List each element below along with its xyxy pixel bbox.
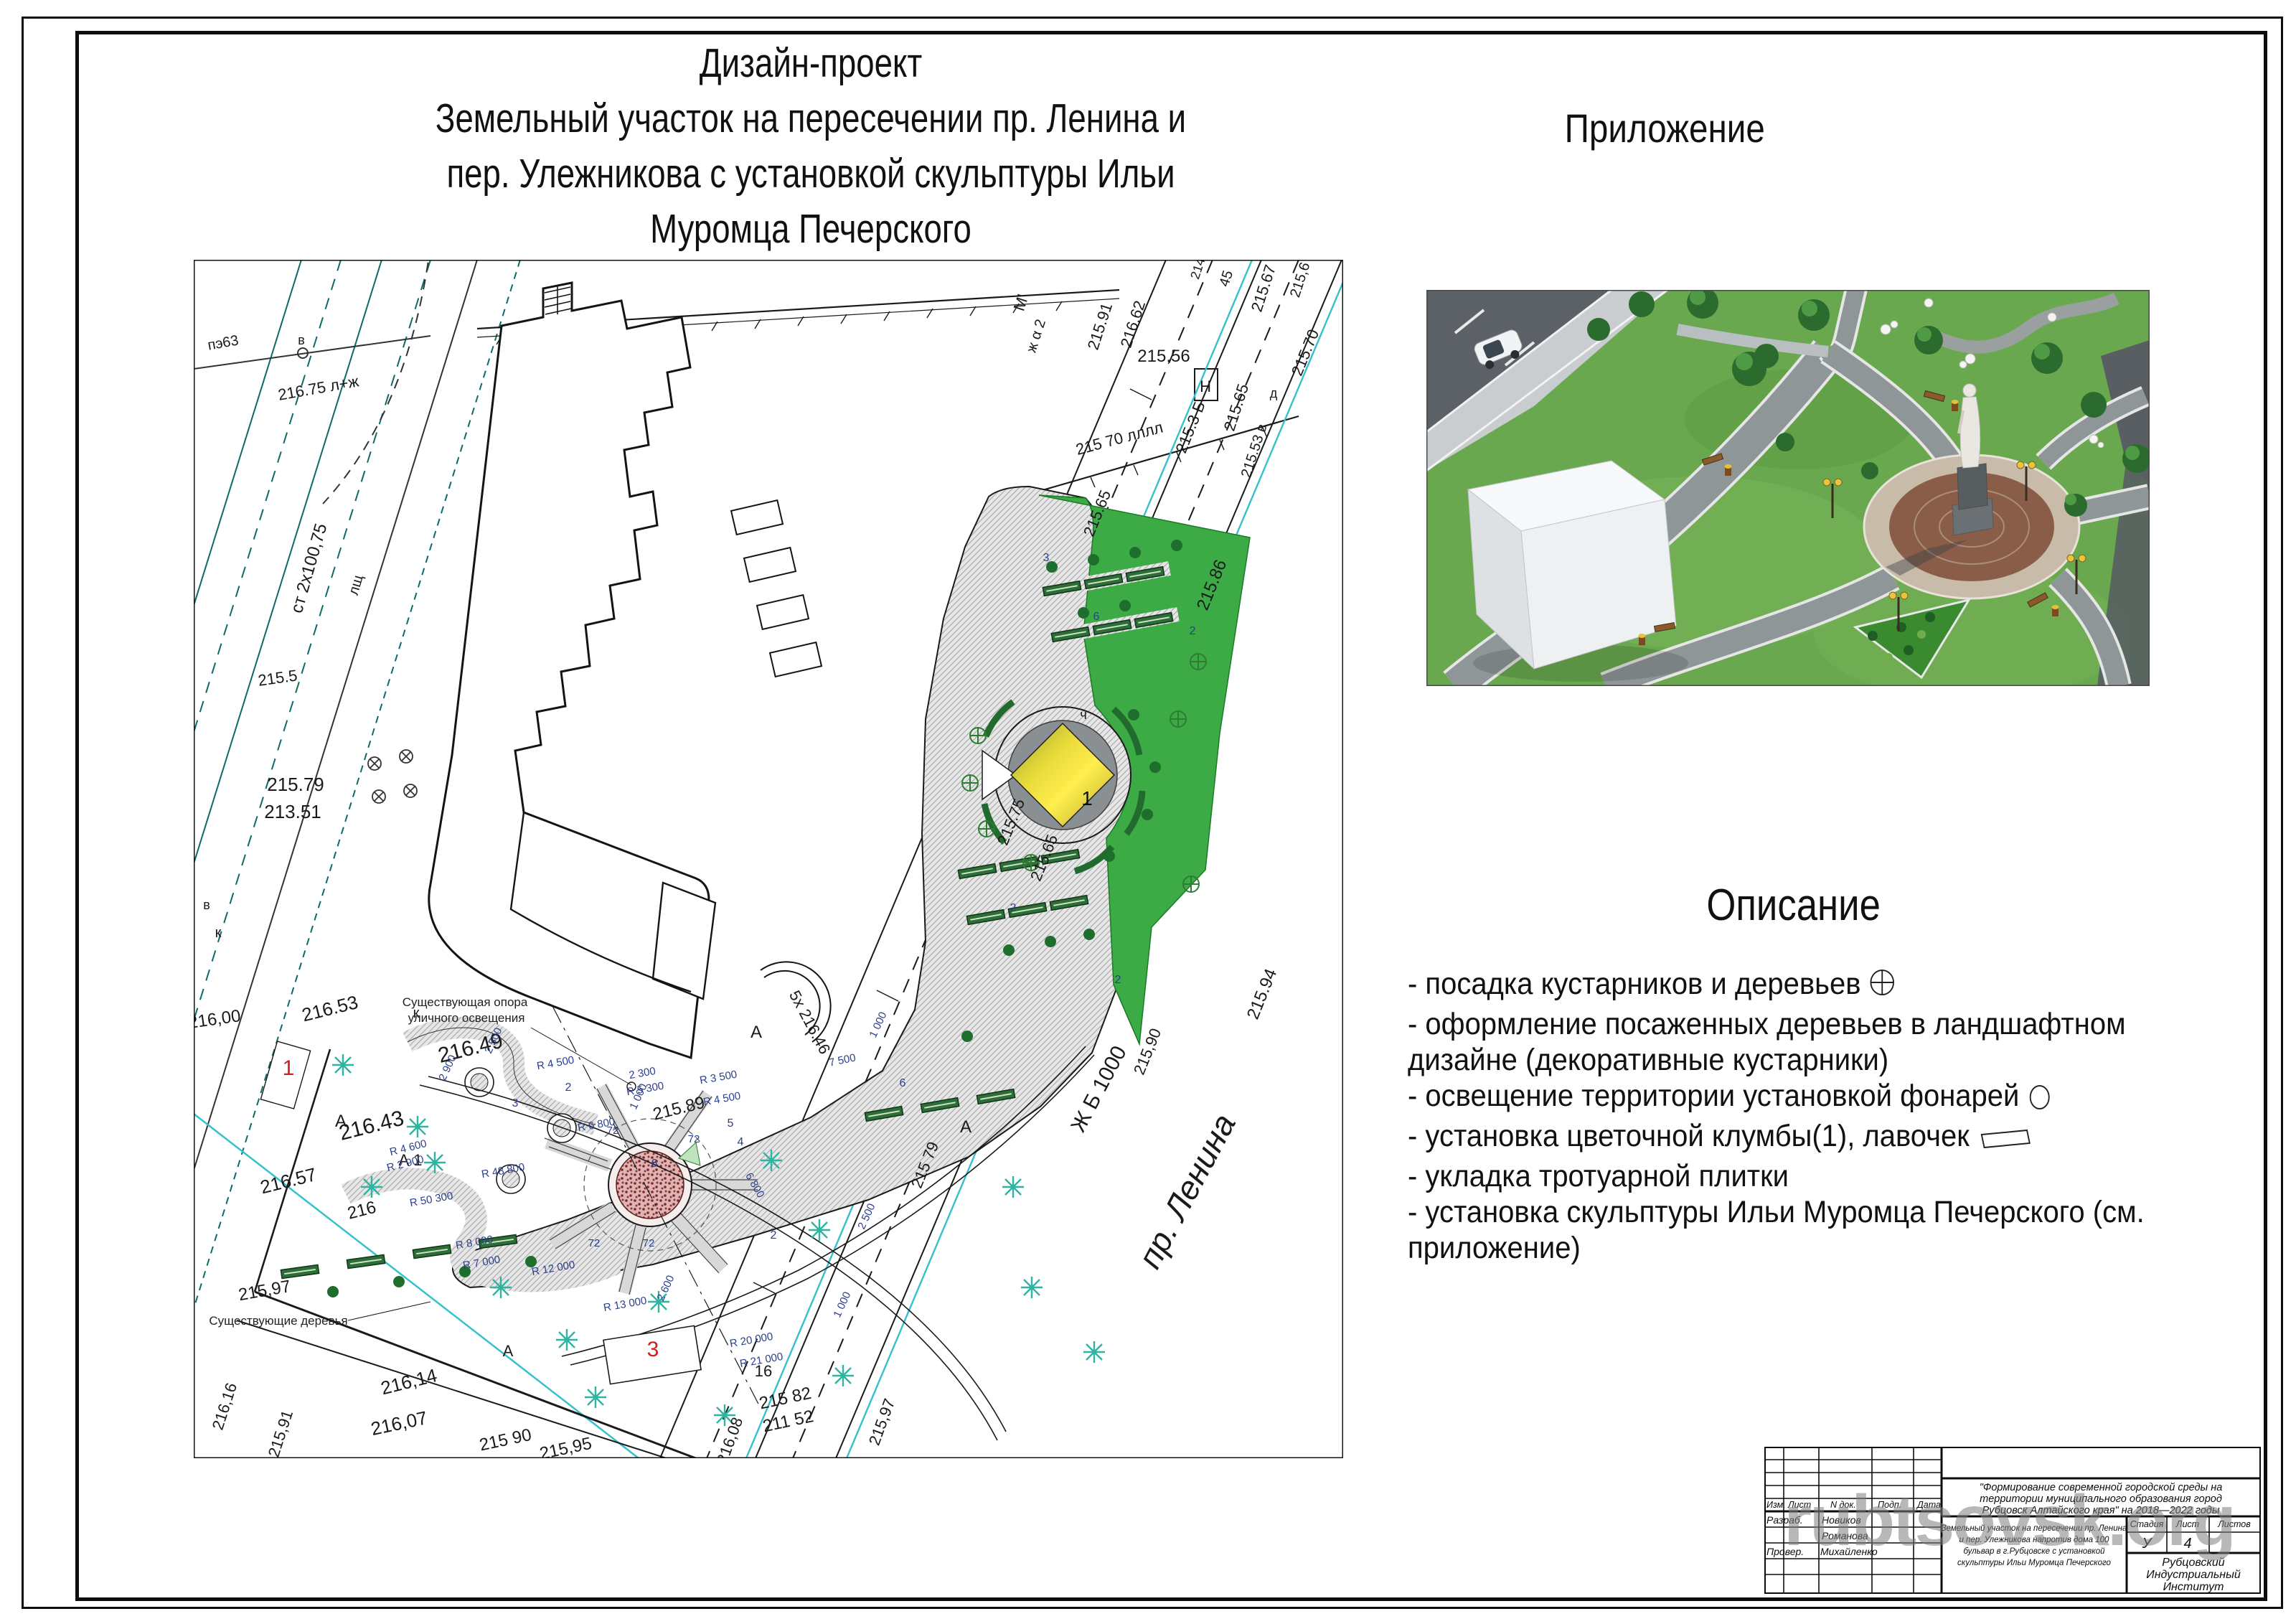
stamp-institute-3: Институт [2163, 1581, 2224, 1593]
plan-label: 2 [1010, 902, 1017, 914]
description-item: - установка скульптуры Ильи Муромца Пече… [1408, 1194, 2222, 1230]
description-heading: Описание [1507, 880, 2081, 931]
plan-label: А [960, 1117, 971, 1137]
appendix-3d-render [1426, 290, 2150, 686]
plan-label: 2 [771, 1229, 777, 1242]
plan-red-label: 3 [647, 1338, 659, 1361]
page-title-line: Земельный участок на пересечении пр. Лен… [329, 91, 1293, 146]
plan-label: 6 [1093, 611, 1100, 623]
description-list: - посадка кустарников и деревьев- оформл… [1408, 966, 2283, 1266]
description-item: - посадка кустарников и деревьев [1408, 966, 2222, 1006]
plan-label: уличного освещения [408, 1011, 525, 1025]
plan-label: к [215, 925, 222, 941]
bench-icon [1976, 1126, 2036, 1150]
watermark: rubtsovsk.org [1758, 1480, 2260, 1562]
description-item: - установка цветочной клумбы(1), лавочек [1408, 1118, 2222, 1158]
plan-label: в [298, 333, 305, 347]
plan-red-label: 1 [283, 1056, 295, 1080]
circle-plus-icon [1868, 967, 1897, 998]
plan-label: Н [1200, 377, 1211, 395]
circle-icon [2026, 1084, 2053, 1110]
description-item: приложение) [1408, 1230, 2222, 1266]
page-title: Дизайн-проектЗемельный участок на пересе… [208, 36, 1413, 257]
plan-label: 72 [607, 1125, 619, 1137]
plan-label: д [1270, 386, 1278, 400]
description-item: - освещение территории установкой фонаре… [1408, 1078, 2222, 1118]
plan-label: 2 [565, 1081, 572, 1094]
page-title-line: Муромца Печерского [329, 202, 1293, 257]
plan-label: 2 [1190, 625, 1196, 637]
plan-label: 5 [728, 1117, 734, 1130]
plan-label: 72 [588, 1237, 601, 1249]
description-item: - укладка тротуарной плитки [1408, 1158, 2222, 1194]
page-title-line: пер. Улежникова с установкой скульптуры … [329, 146, 1293, 202]
plan-label: А [503, 1342, 514, 1360]
stamp-institute-2: Индустриальный [2146, 1569, 2241, 1581]
plan-label: 1 [1081, 787, 1093, 809]
plan-label: А [335, 1112, 347, 1131]
plan-label: 72 [688, 1133, 700, 1145]
plan-label: 215.79 [267, 774, 324, 795]
appendix-heading: Приложение [1428, 105, 1901, 151]
page-title-line: Дизайн-проект [329, 36, 1293, 91]
plan-label: 6 [900, 1077, 906, 1089]
plan-label: 72 [643, 1237, 655, 1249]
plan-label: 213.51 [264, 801, 321, 822]
plan-label: 4 [738, 1136, 744, 1148]
plan-label: Существующие деревья [209, 1314, 347, 1328]
plan-label: А [751, 1023, 762, 1042]
plan-label: 2 [1115, 974, 1121, 986]
plan-label: Существующая опора [403, 995, 528, 1009]
plan-label: 6 [651, 1158, 658, 1170]
site-plan: пэ63в216.75 л+жст 2x100,75лщ215.79213.51… [194, 260, 1343, 1458]
plan-label: ч [1080, 708, 1086, 722]
description-item: дизайне (декоративные кустарники) [1408, 1042, 2222, 1078]
plan-label: в [203, 898, 210, 912]
description-item: - оформление посаженных деревьев в ландш… [1408, 1006, 2222, 1042]
plan-label: 215,56 [1137, 347, 1190, 366]
plan-label: 3 [1043, 552, 1050, 564]
plan-label: 3 [512, 1097, 519, 1109]
